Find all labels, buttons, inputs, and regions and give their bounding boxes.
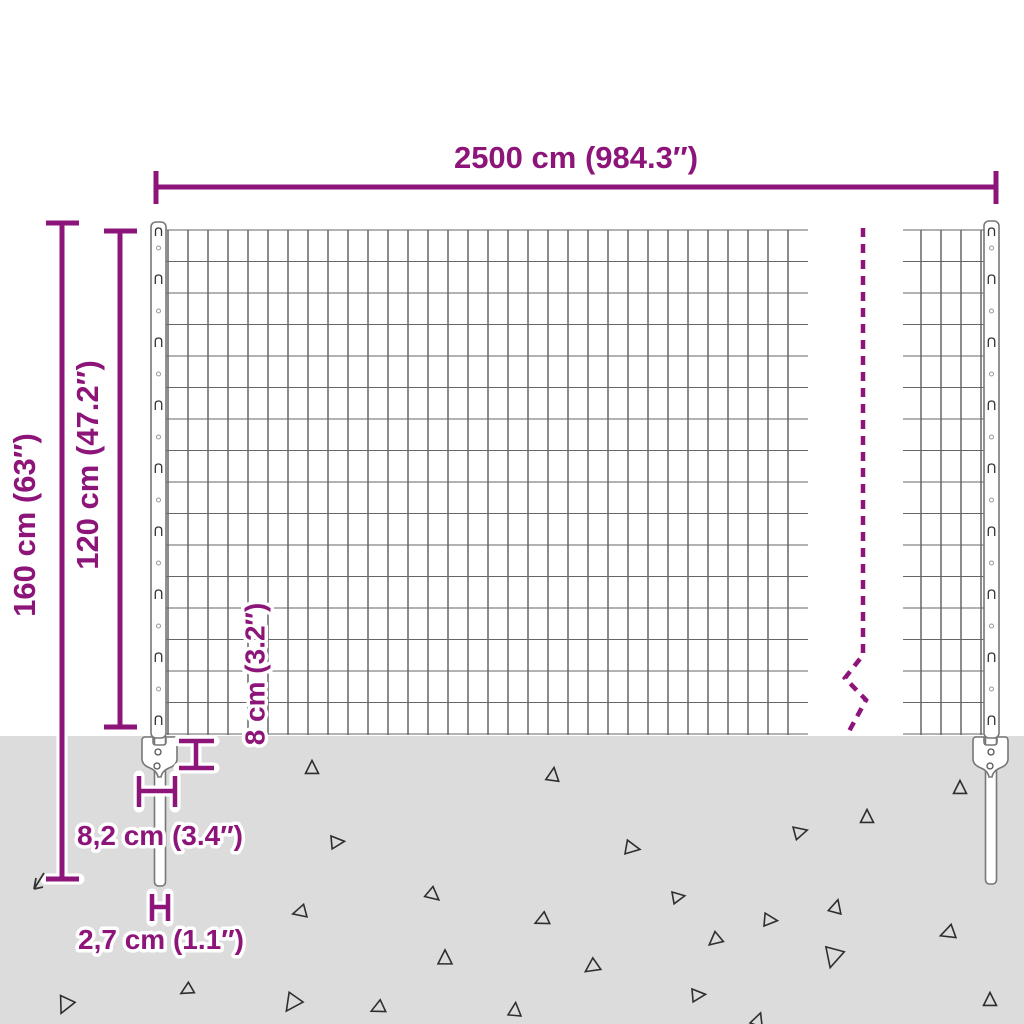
right-plate-hole-top <box>988 749 994 755</box>
dimension-total-width <box>156 171 996 204</box>
right-plate-hole-bottom <box>987 763 993 769</box>
ground-area <box>0 736 1024 1024</box>
dimension-fence-height <box>104 231 137 727</box>
post-clip-marks <box>155 228 994 725</box>
label-spike-width: 2,7 cm (1.1″) <box>78 924 244 955</box>
label-total-width: 2500 cm (984.3″) <box>454 140 698 175</box>
label-fence-height: 120 cm (47.2″) <box>70 360 105 570</box>
label-anchor-width: 8,2 cm (3.4″) <box>77 820 243 851</box>
left-plate-hole-bottom <box>154 763 160 769</box>
label-total-height: 160 cm (63″) <box>7 433 42 617</box>
left-plate-hole-top <box>155 749 161 755</box>
fence-dimension-diagram: 2500 cm (984.3″) 160 cm (63″) 120 cm (47… <box>0 0 1024 1024</box>
label-anchor-depth: 8 cm (3.2″) <box>239 603 270 746</box>
left-fence-post <box>151 222 166 738</box>
right-fence-post <box>984 221 999 738</box>
break-line <box>845 228 866 735</box>
diagram-canvas: 2500 cm (984.3″) 160 cm (63″) 120 cm (47… <box>0 0 1024 1024</box>
